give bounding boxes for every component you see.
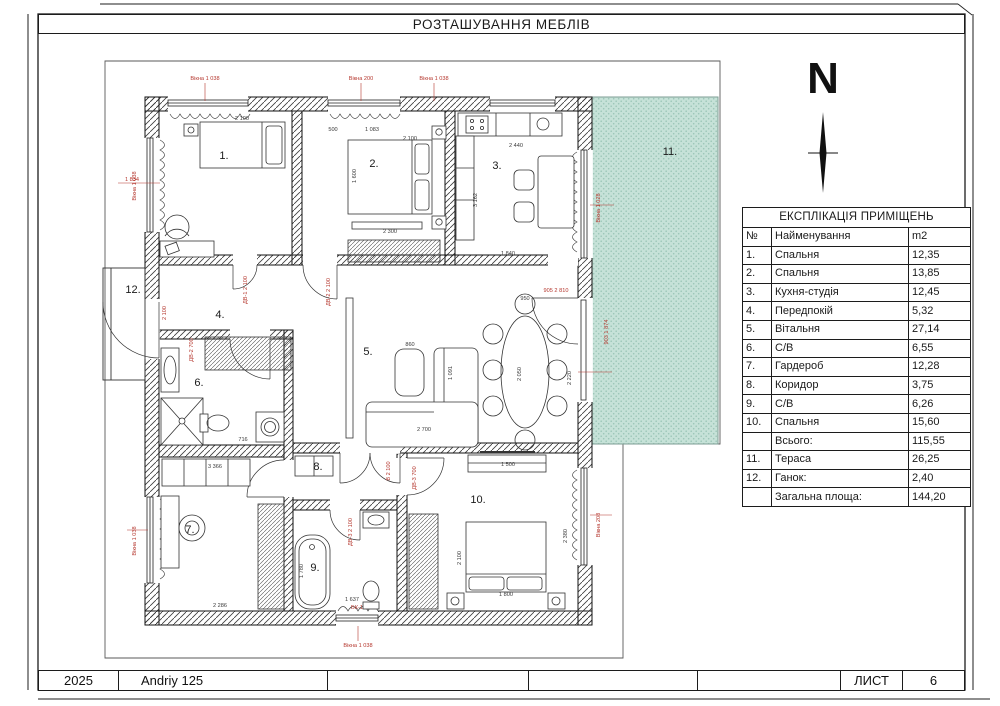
room-label: 10.: [470, 494, 485, 506]
legend-table-body: 1.Спальня12,352.Спальня13,853.Кухня-студ…: [743, 246, 971, 506]
legend-cell: Спальня: [772, 413, 909, 432]
legend-cell: 8.: [743, 376, 772, 395]
legend-cell: 144,20: [909, 488, 971, 507]
annotation-label: ДВ-3 700: [412, 466, 418, 489]
legend-header-row: № Найменування m2: [743, 228, 971, 247]
legend-row: 11.Тераса26,25: [743, 451, 971, 470]
dimension-label: 2 440: [509, 143, 523, 149]
legend-cell: Ганок:: [772, 469, 909, 488]
title-bar: РОЗТАШУВАННЯ МЕБЛІВ: [38, 14, 965, 34]
legend-table: ЕКСПЛІКАЦІЯ ПРИМІЩЕНЬ № Найменування m2 …: [742, 207, 971, 507]
room-label: 9.: [310, 562, 319, 574]
dimension-label: 2 050: [517, 367, 523, 381]
legend-cell: 2,40: [909, 469, 971, 488]
legend-row: 10.Спальня15,60: [743, 413, 971, 432]
legend-cell: 7.: [743, 358, 772, 377]
room-label: 7.: [185, 524, 194, 536]
annotation-label: Вікна 208: [596, 513, 602, 538]
footer-bar: 2025Andriy 125ЛИСТ6: [38, 670, 965, 691]
dimension-label: 3 162: [473, 193, 479, 207]
dimension-label: 950: [520, 296, 529, 302]
legend-row: Загальна площа:144,20: [743, 488, 971, 507]
page-title: РОЗТАШУВАННЯ МЕБЛІВ: [413, 17, 591, 32]
dimension-label: 2 700: [417, 427, 431, 433]
col-header-area: m2: [909, 228, 971, 247]
legend-row: 2.Спальня13,85: [743, 265, 971, 284]
legend-row: 9.С/В6,26: [743, 395, 971, 414]
annotation-label: 903 1 874: [604, 320, 610, 345]
footer-cell: [328, 671, 529, 690]
annotation-label: В 2 100: [386, 461, 392, 480]
dimension-label: 1 800: [499, 592, 513, 598]
dimension-label: 1 637: [345, 597, 359, 603]
sheet-number: 6: [903, 671, 964, 690]
room-label: 1.: [219, 150, 228, 162]
annotation-label: Вікна 1 038: [419, 76, 448, 82]
dimension-label: 500: [328, 127, 337, 133]
sheet-word: ЛИСТ: [841, 671, 903, 690]
north-label: N: [807, 54, 839, 103]
room-label: 5.: [363, 346, 372, 358]
legend-cell: С/В: [772, 339, 909, 358]
legend-cell: Вітальня: [772, 320, 909, 339]
room-label: 6.: [194, 377, 203, 389]
dimension-label: 1 083: [365, 127, 379, 133]
legend-cell: 2.: [743, 265, 772, 284]
annotation-label: Вікна 1 038: [343, 643, 372, 649]
annotation-label: Вікна 1 038: [132, 526, 138, 555]
annotation-label: Вікна 1 028: [596, 193, 602, 222]
legend-row: 4.Передпокій5,32: [743, 302, 971, 321]
annotation-label: ДВ-3 2 100: [348, 518, 354, 546]
furniture: [160, 113, 574, 609]
legend-cell: 11.: [743, 451, 772, 470]
col-header-name: Найменування: [772, 228, 909, 247]
terrace-area: [592, 97, 718, 444]
north-arrow: N: [807, 54, 839, 193]
legend-cell: 115,55: [909, 432, 971, 451]
annotation-label: Вікна 1 038: [190, 76, 219, 82]
legend-cell: Спальня: [772, 265, 909, 284]
annotation-label: 2 100: [162, 306, 168, 320]
annotation-label: Вікна 200: [349, 76, 374, 82]
annotation-label: ДВ-2 2 100: [326, 278, 332, 306]
legend-row: 6.С/В6,55: [743, 339, 971, 358]
legend-cell: [743, 432, 772, 451]
legend-cell: Загальна площа:: [772, 488, 909, 507]
legend-cell: Всього:: [772, 432, 909, 451]
footer-cell: [698, 671, 841, 690]
drawing-sheet: N 1.2.3.4.5.6.7.8.9.10.11.12.Вікна 1 038…: [0, 0, 1000, 706]
legend-row: Всього:115,55: [743, 432, 971, 451]
legend-cell: Гардероб: [772, 358, 909, 377]
dimension-label: 1 500: [501, 462, 515, 468]
annotation-label: Вікна 1 038: [132, 171, 138, 200]
legend-cell: 12.: [743, 469, 772, 488]
annotation-label: 1 834: [125, 177, 139, 183]
dimension-label: 1 091: [448, 366, 454, 380]
annotation-label: ДВ-2 700: [189, 338, 195, 361]
legend-row: 5.Вітальня27,14: [743, 320, 971, 339]
annotation-label: БК-1: [351, 605, 363, 611]
legend-cell: 10.: [743, 413, 772, 432]
dimension-label: 1 600: [352, 169, 358, 183]
legend-cell: Передпокій: [772, 302, 909, 321]
col-header-num: №: [743, 228, 772, 247]
legend-table-title: ЕКСПЛІКАЦІЯ ПРИМІЩЕНЬ: [743, 208, 971, 228]
dimension-label: 3 366: [208, 464, 222, 470]
dimension-label: 2 100: [235, 116, 249, 122]
annotation-label: ДВ-1 2 100: [243, 276, 249, 304]
legend-row: 1.Спальня12,35: [743, 246, 971, 265]
legend-row: 8.Коридор3,75: [743, 376, 971, 395]
legend-cell: 6,26: [909, 395, 971, 414]
legend-cell: Коридор: [772, 376, 909, 395]
dimension-label: 860: [405, 342, 414, 348]
legend-cell: 12,28: [909, 358, 971, 377]
dimension-label: 2 380: [563, 529, 569, 543]
legend-cell: 12,35: [909, 246, 971, 265]
legend-cell: 5,32: [909, 302, 971, 321]
room-label: 2.: [369, 158, 378, 170]
legend-cell: 5.: [743, 320, 772, 339]
dimension-label: 1 840: [501, 251, 515, 257]
legend-cell: 9.: [743, 395, 772, 414]
dimension-label: 2 100: [457, 551, 463, 565]
north-needle-icon: [820, 112, 827, 193]
legend-cell: 26,25: [909, 451, 971, 470]
room-label: 12.: [125, 284, 140, 296]
legend-cell: Кухня-студія: [772, 283, 909, 302]
room-label: 11.: [663, 146, 677, 158]
dimension-label: 2 300: [383, 229, 397, 235]
room-label: 3.: [492, 160, 501, 172]
legend-cell: 15,60: [909, 413, 971, 432]
room-label: 4.: [215, 309, 224, 321]
legend-cell: 12,45: [909, 283, 971, 302]
legend-cell: 6.: [743, 339, 772, 358]
legend-cell: 27,14: [909, 320, 971, 339]
dimension-label: 716: [238, 437, 247, 443]
legend-cell: С/В: [772, 395, 909, 414]
legend-cell: 3.: [743, 283, 772, 302]
legend-cell: Спальня: [772, 246, 909, 265]
legend-cell: Тераса: [772, 451, 909, 470]
legend-cell: 13,85: [909, 265, 971, 284]
legend-cell: 3,75: [909, 376, 971, 395]
dimension-label: 2 286: [213, 603, 227, 609]
legend-cell: 4.: [743, 302, 772, 321]
legend-row: 7.Гардероб12,28: [743, 358, 971, 377]
room-label: 8.: [313, 461, 322, 473]
sheet-year: 2025: [39, 671, 119, 690]
legend-row: 12.Ганок:2,40: [743, 469, 971, 488]
legend-cell: 6,55: [909, 339, 971, 358]
legend-cell: [743, 488, 772, 507]
dimension-label: 2 220: [567, 371, 573, 385]
project-name: Andriy 125: [119, 671, 328, 690]
dimension-label: 1 780: [299, 564, 305, 578]
dimension-label: 2 100: [403, 136, 417, 142]
legend-row: 3.Кухня-студія12,45: [743, 283, 971, 302]
legend-cell: 1.: [743, 246, 772, 265]
footer-cell: [529, 671, 698, 690]
annotation-label: 905 2 810: [544, 288, 569, 294]
